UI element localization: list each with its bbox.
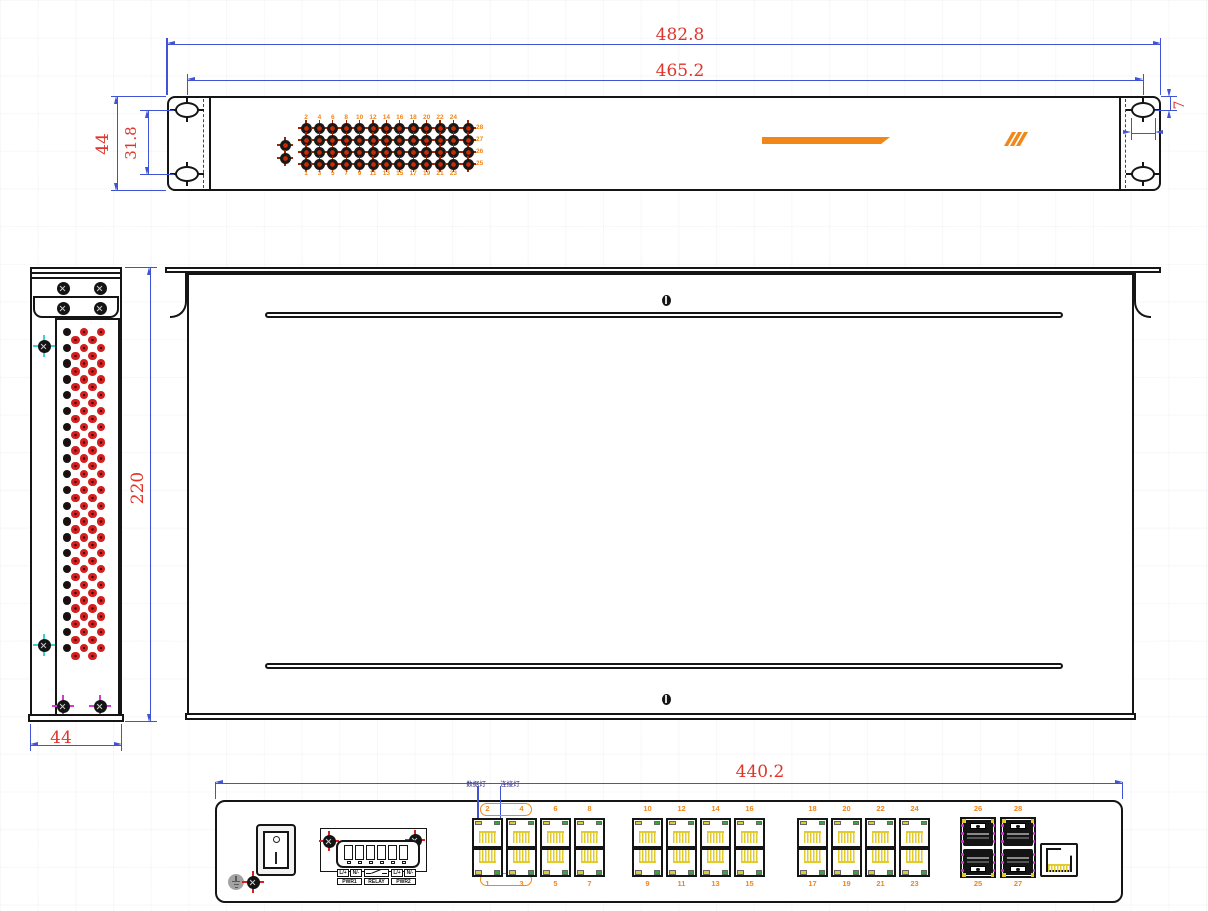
vent-hole	[97, 344, 105, 352]
port-led-number: 11	[366, 170, 380, 177]
vent-hole	[88, 446, 96, 454]
dimension-arrow	[187, 77, 195, 81]
port-pins	[639, 831, 656, 844]
ext-line	[215, 782, 217, 799]
rear-port-number: 18	[802, 804, 824, 813]
port-pins	[906, 831, 923, 844]
led-indicator	[301, 159, 312, 170]
ext-line	[187, 74, 189, 95]
sfp-pin-dot	[961, 861, 964, 864]
vent-hole	[80, 375, 88, 383]
sfp-slot-line	[967, 861, 989, 863]
port-led-number: 2	[299, 114, 313, 121]
port-led-green	[528, 870, 535, 875]
port-led-yellow	[834, 870, 841, 875]
port-pins	[547, 831, 564, 844]
vent-hole	[97, 596, 105, 604]
top-view-screw-slot	[665, 695, 666, 703]
led-indicator	[421, 159, 432, 170]
vent-hole	[88, 557, 96, 565]
branding-bar	[762, 137, 890, 144]
port-pins	[673, 850, 690, 863]
sfp-corner-mark	[1002, 819, 1006, 823]
sfp-slot-line	[967, 837, 989, 839]
terminal-slot-hole	[380, 861, 384, 864]
terminal-label: PWR2	[391, 878, 416, 886]
terminal-slot-hole	[402, 861, 406, 864]
sfp-slot-line	[967, 833, 989, 835]
port-led-yellow	[669, 870, 676, 875]
vent-hole	[88, 510, 96, 518]
port-pins	[673, 831, 690, 844]
dim-line-44-side	[30, 745, 122, 746]
rear-port-number: 20	[836, 804, 858, 813]
ext-line	[1131, 118, 1133, 140]
port-led-green	[722, 821, 729, 826]
port-pins	[513, 831, 530, 844]
port-led-number: 7	[339, 170, 353, 177]
dim-line-11	[1131, 133, 1155, 134]
port-led-yellow	[635, 821, 642, 826]
dimension-arrow	[30, 742, 38, 746]
terminal-label: RELAY	[364, 878, 389, 886]
port-led-number: 10	[353, 114, 367, 121]
ext-line	[30, 724, 32, 751]
port-led-yellow	[475, 870, 482, 875]
port-led-green	[528, 821, 535, 826]
port-led-number: 5	[326, 170, 340, 177]
port-led-yellow	[703, 821, 710, 826]
port-led-yellow	[737, 821, 744, 826]
vent-hole	[88, 573, 96, 581]
vent-hole-dark	[63, 533, 71, 541]
port-led-green	[654, 870, 661, 875]
ext-line	[140, 174, 174, 176]
port-pins	[707, 831, 724, 844]
ext-line	[1155, 110, 1177, 112]
sfp-pin-dot	[1033, 824, 1036, 827]
port-led-green	[722, 870, 729, 875]
dimension-arrow	[114, 96, 118, 104]
port-led-green	[819, 870, 826, 875]
port-pins	[872, 831, 889, 844]
vent-hole	[88, 352, 96, 360]
sfp-slot-line	[1007, 857, 1029, 859]
sfp-corner-mark	[1002, 873, 1006, 877]
port-led-number: 24	[446, 114, 460, 121]
sfp-corner-mark	[962, 873, 966, 877]
terminal-slot	[344, 845, 353, 860]
vent-hole	[97, 502, 105, 510]
led-indicator	[280, 140, 291, 151]
sfp-pin-dot	[1033, 861, 1036, 864]
rear-port-number: 8	[579, 804, 601, 813]
port-pins	[707, 850, 724, 863]
port-led-number: 19	[420, 170, 434, 177]
dimension-arrow	[145, 110, 149, 118]
led-indicator	[435, 159, 446, 170]
terminal-slot	[366, 845, 375, 860]
terminal-slot	[377, 845, 386, 860]
port-pins	[872, 850, 889, 863]
side-bottom-bar	[28, 714, 124, 722]
sfp-pin-dot	[1001, 853, 1004, 856]
vent-hole	[71, 525, 79, 533]
port-pins	[804, 850, 821, 863]
port-led-number: 9	[353, 170, 367, 177]
top-view-left-ear	[170, 273, 187, 318]
top-view-right-ear	[1134, 273, 1151, 318]
data-led-leader-line	[477, 786, 479, 818]
sfp-pin-dot	[961, 832, 964, 835]
vent-hole	[80, 454, 88, 462]
fiber-led-number: 25	[476, 160, 490, 167]
vent-hole	[88, 431, 96, 439]
top-view-body	[187, 273, 1134, 716]
vent-hole	[88, 636, 96, 644]
port-led-number: 16	[393, 114, 407, 121]
rear-port-number: 12	[671, 804, 693, 813]
port-led-green	[688, 870, 695, 875]
sfp-pin-dot	[1001, 840, 1004, 843]
vent-hole	[97, 423, 105, 431]
vent-hole	[71, 352, 79, 360]
terminal-slot-hole	[358, 861, 362, 864]
vent-hole	[88, 525, 96, 533]
sfp-corner-mark	[1031, 873, 1035, 877]
sfp-corner-mark	[991, 873, 995, 877]
dim-depth: 220	[128, 468, 148, 508]
vent-hole	[71, 589, 79, 597]
sfp-pin-dot	[993, 861, 996, 864]
port-led-green	[562, 821, 569, 826]
terminal-slot-hole	[391, 861, 395, 864]
terminal-label: L/+	[391, 869, 403, 877]
rear-port-number: 24	[904, 804, 926, 813]
sfp-pin-dot	[993, 832, 996, 835]
port-led-number: 20	[420, 114, 434, 121]
rear-port-number: 22	[870, 804, 892, 813]
fiber-led-number: 28	[476, 124, 490, 131]
vent-hole-dark	[63, 423, 71, 431]
port-led-yellow	[543, 870, 550, 875]
port-led-green	[756, 870, 763, 875]
led-indicator	[448, 159, 459, 170]
rear-port-number: 17	[802, 879, 824, 888]
sfp-slot-line	[1007, 837, 1029, 839]
vent-hole	[80, 502, 88, 510]
port-led-yellow	[543, 821, 550, 826]
console-port-pins	[1048, 864, 1070, 872]
dimension-arrow	[1155, 130, 1163, 134]
vent-hole	[71, 636, 79, 644]
dimension-arrow	[167, 41, 175, 45]
rear-port-number: 16	[739, 804, 761, 813]
terminal-slot	[388, 845, 397, 860]
sfp-corner-mark	[991, 819, 995, 823]
rear-port-number: 7	[579, 879, 601, 888]
port-led-number: 21	[433, 170, 447, 177]
vent-hole-dark	[63, 344, 71, 352]
port-led-yellow	[577, 870, 584, 875]
rear-port-number: 21	[870, 879, 892, 888]
side-bracket-line	[30, 272, 122, 274]
port-led-green	[494, 821, 501, 826]
vent-hole	[80, 359, 88, 367]
port-led-number: 8	[339, 114, 353, 121]
vent-hole	[71, 652, 79, 660]
ext-line	[1155, 118, 1157, 140]
port-led-green	[921, 870, 928, 875]
ext-line	[140, 110, 174, 112]
terminal-label: L/+	[337, 869, 349, 877]
vent-hole-dark	[63, 502, 71, 510]
port-led-yellow	[902, 821, 909, 826]
port-led-green	[887, 870, 894, 875]
port-led-yellow	[737, 870, 744, 875]
led-indicator	[354, 159, 365, 170]
vent-hole	[71, 478, 79, 486]
sfp-port-number: 28	[1007, 804, 1029, 813]
led-indicator	[394, 159, 405, 170]
led-indicator	[314, 159, 325, 170]
port-led-number: 23	[446, 170, 460, 177]
terminal-slot-hole	[369, 861, 373, 864]
port-led-number: 12	[366, 114, 380, 121]
port-led-number: 4	[312, 114, 326, 121]
vent-hole	[71, 336, 79, 344]
vent-hole	[71, 604, 79, 612]
dim-line-220	[150, 267, 151, 722]
terminal-slot	[355, 845, 364, 860]
rear-port-number: 15	[739, 879, 761, 888]
port-led-green	[853, 821, 860, 826]
sfp-pin-dot	[993, 853, 996, 856]
vent-hole	[80, 533, 88, 541]
top-view-screw-slot	[665, 296, 666, 304]
rear-port-number: 19	[836, 879, 858, 888]
vent-hole	[71, 367, 79, 375]
rear-port-number: 4	[511, 804, 533, 813]
vent-hole	[71, 510, 79, 518]
port-led-yellow	[800, 821, 807, 826]
dim-hole-center-width: 465.2	[600, 61, 760, 81]
vent-hole-dark	[63, 359, 71, 367]
port-led-yellow	[509, 870, 516, 875]
sfp-slot-line	[1007, 861, 1029, 863]
port-led-number: 1	[299, 170, 313, 177]
sfp-pin-dot	[993, 840, 996, 843]
vent-hole	[97, 517, 105, 525]
mount-hole	[1131, 166, 1155, 182]
sfp-port-number: 25	[967, 879, 989, 888]
sfp-slot-line	[1007, 833, 1029, 835]
sfp-pin-dot	[1001, 832, 1004, 835]
vent-hole	[97, 438, 105, 446]
sfp-bale-hole	[1016, 868, 1020, 872]
dim-line-465	[187, 80, 1143, 81]
ext-line	[111, 96, 166, 98]
port-led-number: 13	[379, 170, 393, 177]
sfp-bale-hole	[976, 868, 980, 872]
technical-drawing-canvas: 482.8 465.2 44 31.8 7 11 220 44 440.2 PW…	[0, 0, 1208, 911]
port-led-green	[654, 821, 661, 826]
port-led-yellow	[703, 870, 710, 875]
vent-hole	[80, 612, 88, 620]
port-pins	[741, 831, 758, 844]
sfp-pin-dot	[1033, 869, 1036, 872]
dim-line-7	[1170, 96, 1171, 110]
vent-hole	[88, 415, 96, 423]
port-pins	[513, 850, 530, 863]
vent-hole-dark	[63, 454, 71, 462]
ext-line	[125, 721, 157, 723]
port-led-green	[921, 821, 928, 826]
port-led-yellow	[902, 870, 909, 875]
port-led-green	[494, 870, 501, 875]
sfp-pin-dot	[993, 824, 996, 827]
rear-port-number: 23	[904, 879, 926, 888]
vent-hole-dark	[63, 517, 71, 525]
side-bracket-line	[30, 277, 122, 279]
led-indicator	[368, 159, 379, 170]
ground-symbol-bar	[234, 884, 239, 885]
vent-hole	[71, 573, 79, 581]
vent-hole	[80, 438, 88, 446]
vent-hole	[71, 557, 79, 565]
dim-line-440	[215, 783, 1123, 784]
port-pins	[741, 850, 758, 863]
sfp-pin-dot	[1033, 832, 1036, 835]
terminal-label: N/-	[404, 869, 416, 877]
vent-hole-dark	[63, 596, 71, 604]
vent-hole	[88, 478, 96, 486]
port-pins	[639, 850, 656, 863]
port-led-green	[853, 870, 860, 875]
sfp-pin-dot	[1001, 824, 1004, 827]
port-led-yellow	[868, 870, 875, 875]
ext-line	[166, 38, 168, 95]
port-led-green	[596, 821, 603, 826]
led-indicator	[327, 159, 338, 170]
ext-line	[1122, 782, 1124, 799]
vent-hole	[88, 652, 96, 660]
vent-hole	[71, 415, 79, 423]
port-led-number: 17	[406, 170, 420, 177]
sfp-bale-hole	[1016, 825, 1020, 829]
port-led-green	[819, 821, 826, 826]
led-indicator	[280, 153, 291, 164]
port-led-green	[688, 821, 695, 826]
sfp-slot-line	[967, 857, 989, 859]
port-led-yellow	[635, 870, 642, 875]
dim-line-44-front	[117, 96, 118, 191]
port-pins	[581, 850, 598, 863]
vent-hole	[80, 344, 88, 352]
port-led-green	[596, 870, 603, 875]
mount-hole	[1131, 102, 1155, 118]
sfp-bale-hole	[976, 825, 980, 829]
port-pins	[838, 831, 855, 844]
front-panel-left-separator	[209, 96, 211, 191]
port-led-yellow	[800, 870, 807, 875]
sfp-pin-dot	[961, 824, 964, 827]
port-led-green	[887, 821, 894, 826]
ext-line	[111, 190, 166, 192]
terminal-label: N/-	[350, 869, 362, 877]
port-led-yellow	[868, 821, 875, 826]
port-led-green	[562, 870, 569, 875]
rear-port-number: 3	[511, 879, 533, 888]
port-led-yellow	[577, 821, 584, 826]
vent-hole	[88, 494, 96, 502]
port-led-number: 18	[406, 114, 420, 121]
power-switch-i-mark	[275, 852, 278, 864]
vent-hole	[88, 589, 96, 597]
ext-line	[1143, 74, 1145, 95]
front-panel-right-separator	[1119, 96, 1121, 191]
rear-port-number: 10	[637, 804, 659, 813]
vent-hole	[97, 612, 105, 620]
port-pins	[804, 831, 821, 844]
mount-hole	[175, 102, 199, 118]
vent-hole	[97, 533, 105, 541]
sfp-port-number: 27	[1007, 879, 1029, 888]
dim-line-482	[167, 44, 1161, 45]
rear-port-number: 5	[545, 879, 567, 888]
led-indicator	[381, 159, 392, 170]
ext-line	[125, 267, 157, 269]
dimension-arrow	[147, 267, 151, 275]
sfp-corner-mark	[1031, 819, 1035, 823]
led-indicator	[341, 159, 352, 170]
dim-hole-spacing-vertical: 31.8	[122, 121, 140, 165]
vent-hole	[88, 367, 96, 375]
port-led-yellow	[475, 821, 482, 826]
port-led-number: 3	[312, 170, 326, 177]
vent-hole	[97, 581, 105, 589]
dim-rear-width: 440.2	[680, 762, 840, 782]
sfp-pin-dot	[1033, 840, 1036, 843]
vent-hole	[80, 517, 88, 525]
terminal-slot-hole	[347, 861, 351, 864]
sfp-port-number: 26	[967, 804, 989, 813]
vent-hole-dark	[63, 375, 71, 383]
top-view-slot	[265, 663, 1063, 669]
sfp-pin-dot	[1001, 869, 1004, 872]
vent-hole	[97, 454, 105, 462]
led-indicator	[408, 159, 419, 170]
rear-port-number: 9	[637, 879, 659, 888]
dim-front-height: 44	[93, 127, 113, 161]
top-view-rear-edge	[185, 713, 1136, 720]
vent-hole	[97, 375, 105, 383]
vent-hole	[80, 423, 88, 431]
port-pins	[906, 850, 923, 863]
sfp-pin-dot	[993, 869, 996, 872]
vent-hole	[71, 399, 79, 407]
rear-port-number: 6	[545, 804, 567, 813]
sfp-corner-mark	[962, 819, 966, 823]
ext-line	[1161, 96, 1177, 98]
rear-port-number: 1	[477, 879, 499, 888]
dim-overall-width: 482.8	[600, 25, 760, 45]
port-led-yellow	[509, 821, 516, 826]
vent-hole-dark	[63, 612, 71, 620]
dimension-arrow	[1167, 110, 1171, 118]
sfp-pin-dot	[961, 869, 964, 872]
port-pins	[479, 831, 496, 844]
